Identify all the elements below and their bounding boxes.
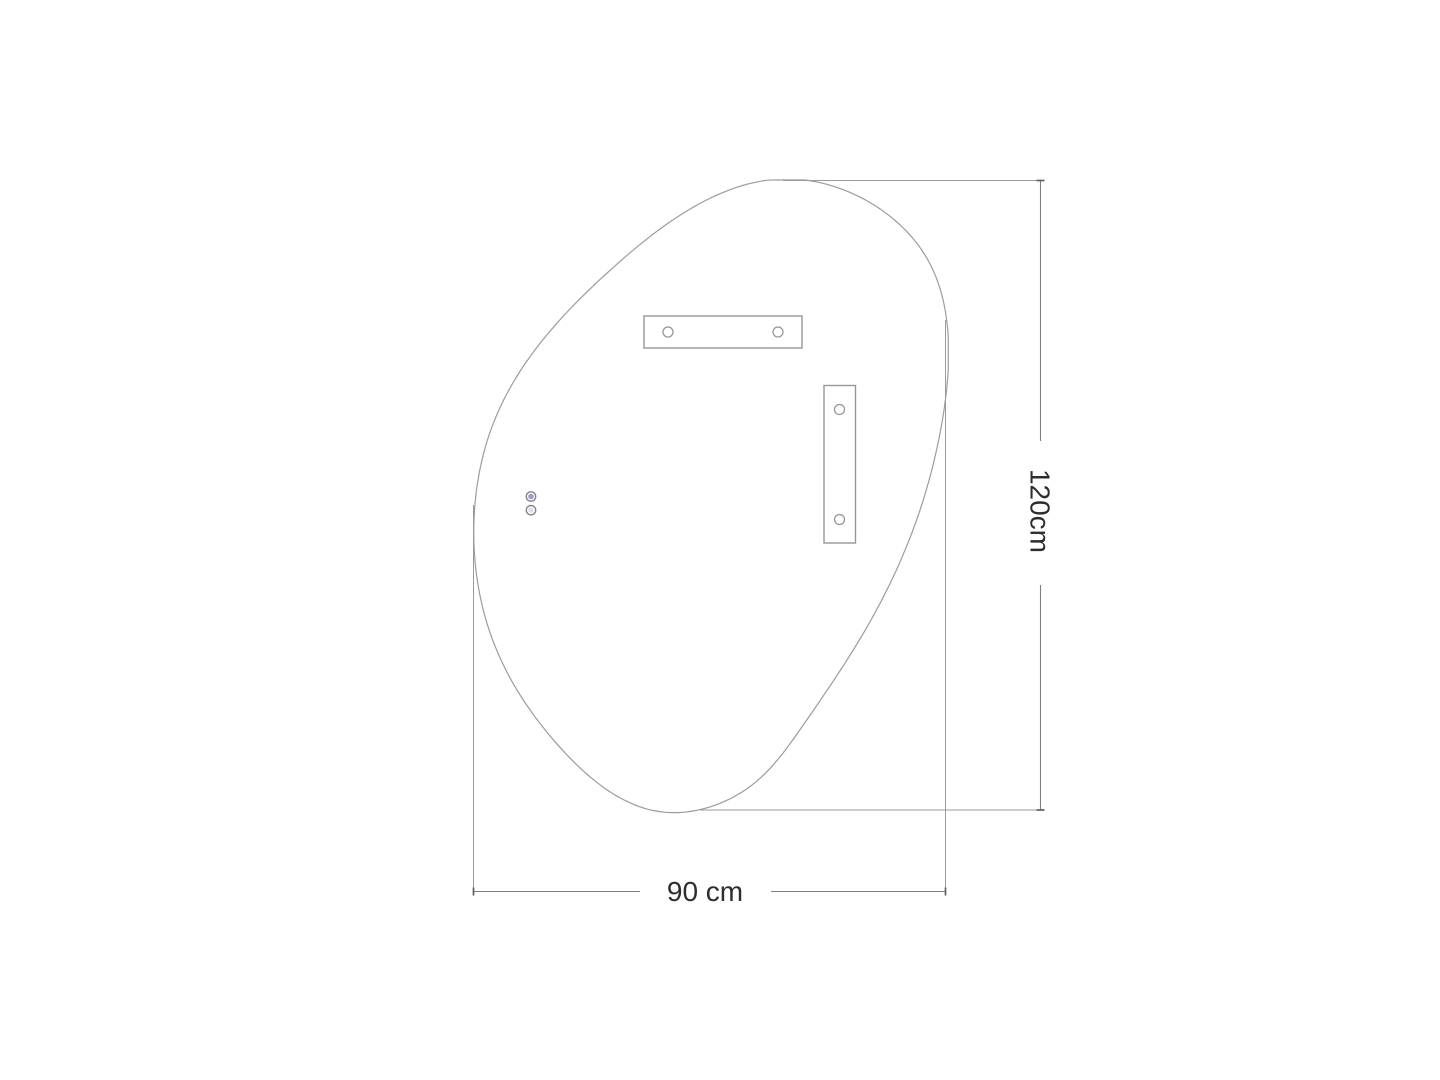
svg-text:120cm: 120cm (1025, 469, 1056, 553)
svg-text:90 cm: 90 cm (667, 876, 743, 907)
